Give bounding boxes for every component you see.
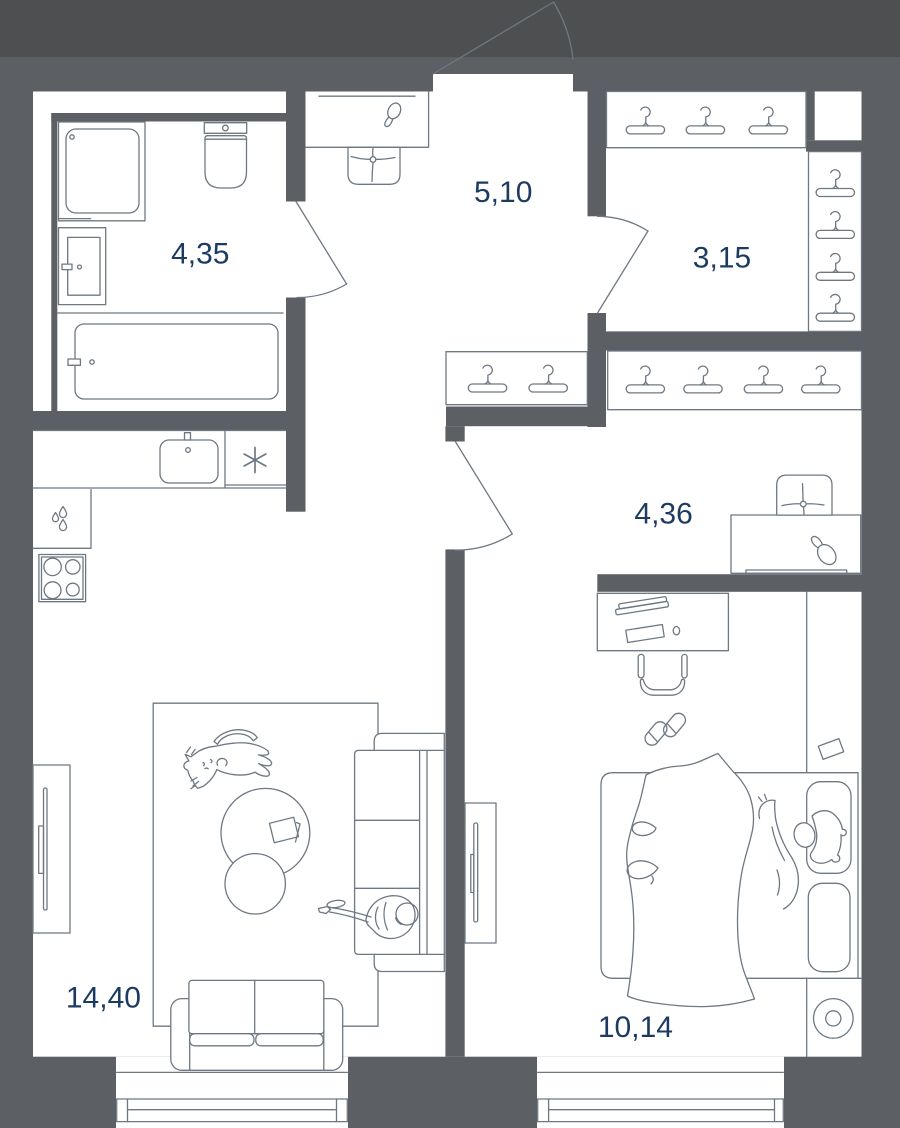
svg-text:3,15: 3,15 [693, 242, 751, 275]
svg-text:14,40: 14,40 [66, 982, 141, 1015]
svg-text:10,14: 10,14 [598, 1011, 673, 1044]
svg-text:4,35: 4,35 [171, 238, 229, 271]
svg-text:4,36: 4,36 [634, 498, 692, 531]
svg-text:5,10: 5,10 [474, 176, 532, 209]
